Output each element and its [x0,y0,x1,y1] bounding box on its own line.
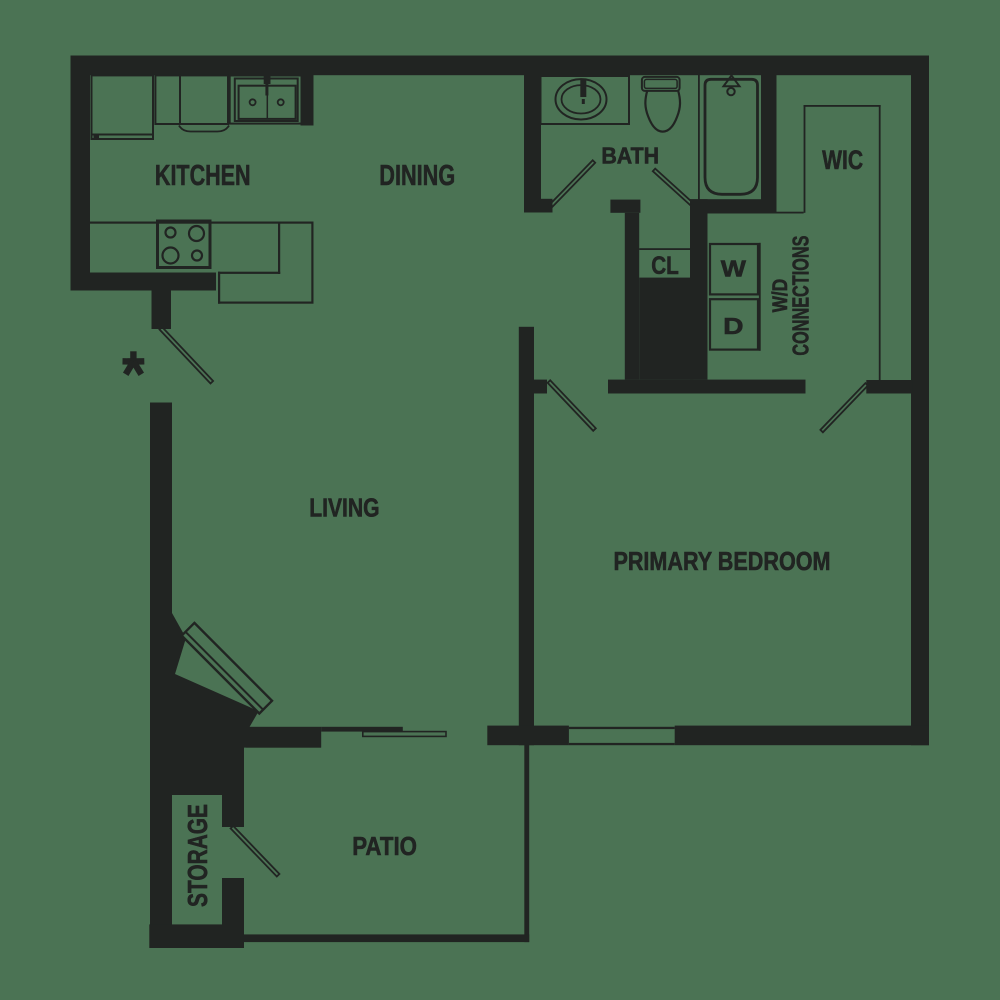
svg-text:CONNECTIONS: CONNECTIONS [787,236,813,356]
svg-text:STORAGE: STORAGE [182,804,213,907]
svg-text:PRIMARY BEDROOM: PRIMARY BEDROOM [613,546,830,576]
svg-text:LIVING: LIVING [309,493,379,523]
svg-text:BATH: BATH [601,142,659,168]
svg-text:WIC: WIC [822,145,863,175]
svg-text:CL: CL [651,253,679,280]
svg-text:PATIO: PATIO [352,831,417,861]
svg-text:DINING: DINING [379,160,455,192]
svg-text:KITCHEN: KITCHEN [155,160,251,192]
svg-text:D: D [723,313,743,339]
svg-text:W: W [721,255,747,281]
